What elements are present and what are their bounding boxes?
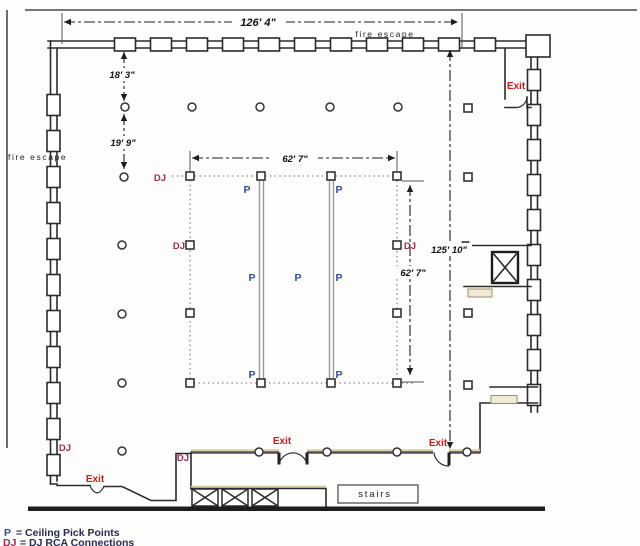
wall-pilaster xyxy=(528,175,541,196)
wall-pilaster xyxy=(47,383,60,404)
pick-point-label: P xyxy=(248,369,255,381)
wall-pilaster xyxy=(47,131,60,152)
wall-pilaster xyxy=(403,38,424,51)
wall-pilaster xyxy=(528,315,541,336)
column-square xyxy=(393,309,401,317)
south-walls xyxy=(28,450,545,511)
bottom-wall xyxy=(28,507,545,512)
wall-pilaster xyxy=(47,455,60,476)
dim-label-rig-width: 62' 7" xyxy=(282,154,308,165)
column-square xyxy=(464,309,472,317)
exit-label-center: Exit xyxy=(273,436,292,447)
ledge xyxy=(468,289,492,297)
column-square xyxy=(393,379,401,387)
column-circle xyxy=(255,448,263,456)
column-square xyxy=(186,241,194,249)
column-square xyxy=(393,172,401,180)
wall-pilaster xyxy=(259,38,280,51)
double-door-swing xyxy=(279,453,307,464)
column-square xyxy=(186,379,194,387)
exit-label-right: Exit xyxy=(429,438,448,449)
column-circle xyxy=(118,447,126,455)
wall-pilaster xyxy=(295,38,316,51)
fire-escape-label-top: fire escape xyxy=(355,29,414,39)
wall-pilaster xyxy=(528,70,541,91)
pick-point-label: P xyxy=(335,369,342,381)
scan-frame xyxy=(7,10,637,448)
wall-pilaster xyxy=(528,350,541,371)
column-circle xyxy=(323,448,331,456)
pick-point-label: P xyxy=(335,272,342,284)
wall-pilaster xyxy=(47,419,60,440)
column-square xyxy=(257,172,265,180)
dj-label: DJ xyxy=(173,241,185,252)
wall-pilaster xyxy=(47,95,60,116)
stairs-label: stairs xyxy=(358,489,392,500)
column-square xyxy=(257,379,265,387)
wall-pilaster xyxy=(528,140,541,161)
wall-pilaster xyxy=(47,275,60,296)
column-square xyxy=(186,309,194,317)
wall-pilaster xyxy=(528,280,541,301)
wall-pilaster xyxy=(47,239,60,260)
floor-plan: 126' 4" 18' 3" 19' 9" 62' 7" 62' 7" 125'… xyxy=(0,0,640,546)
column-circle xyxy=(118,310,126,318)
wall-pilaster xyxy=(47,311,60,332)
wall-pilaster xyxy=(475,38,496,51)
wall-pilaster xyxy=(151,38,172,51)
dim-label-top-width: 126' 4" xyxy=(240,17,276,29)
wall-pilaster xyxy=(47,167,60,188)
column-circle xyxy=(326,103,334,111)
dj-label: DJ xyxy=(177,453,189,464)
column-circle xyxy=(120,173,128,181)
legend-dj-symbol: DJ xyxy=(3,537,17,546)
pick-point-label: P xyxy=(294,272,301,284)
floor-plan-svg: 126' 4" 18' 3" 19' 9" 62' 7" 62' 7" 125'… xyxy=(0,0,640,546)
exterior-walls xyxy=(47,35,550,484)
wall-pilaster xyxy=(528,210,541,231)
column-square xyxy=(186,172,194,180)
wall-pilaster xyxy=(439,38,460,51)
pick-point-label: P xyxy=(335,184,342,196)
column-square xyxy=(327,172,335,180)
column-square xyxy=(327,379,335,387)
dj-label: DJ xyxy=(59,443,71,454)
text-layer: 126' 4" 18' 3" 19' 9" 62' 7" 62' 7" 125'… xyxy=(3,17,526,546)
wall-pilaster xyxy=(331,38,352,51)
corner-pilaster xyxy=(526,35,550,57)
dim-label-18-3: 18' 3" xyxy=(109,70,135,81)
door-swing-arc xyxy=(516,97,527,108)
dj-label: DJ xyxy=(154,173,166,184)
dim-label-19-9: 19' 9" xyxy=(110,138,136,149)
column-square xyxy=(464,104,472,112)
column-square xyxy=(393,241,401,249)
column-circle xyxy=(256,103,264,111)
dj-label: DJ xyxy=(404,241,416,252)
dim-label-rig-height: 62' 7" xyxy=(400,268,426,279)
elevator-core xyxy=(463,242,532,297)
wall-pilaster xyxy=(115,38,136,51)
column-circle xyxy=(188,103,196,111)
wall-pilaster xyxy=(47,203,60,224)
column-circle xyxy=(393,448,401,456)
column-square xyxy=(464,173,472,181)
exit-label-left: Exit xyxy=(86,474,105,485)
pick-point-label: P xyxy=(248,272,255,284)
dim-label-hall-depth: 125' 10" xyxy=(431,245,467,256)
door-swing-arc xyxy=(434,453,449,467)
wall-pilaster xyxy=(223,38,244,51)
column-circle xyxy=(118,241,126,249)
column-circle xyxy=(118,379,126,387)
wall-pilaster xyxy=(187,38,208,51)
rig-area xyxy=(172,176,413,383)
exit-label-top-right: Exit xyxy=(507,81,526,92)
door-swing-arc xyxy=(90,486,104,493)
wall-pilaster xyxy=(367,38,388,51)
ledge xyxy=(491,396,517,404)
column-square xyxy=(464,381,472,389)
column-circle xyxy=(463,448,471,456)
column-circle xyxy=(121,103,129,111)
fire-escape-label-left: fire escape xyxy=(8,152,67,162)
column-circle xyxy=(394,103,402,111)
shaft-boxes xyxy=(192,489,278,506)
wall-pilaster xyxy=(47,347,60,368)
pick-point-label: P xyxy=(243,184,250,196)
wall-pilaster xyxy=(528,245,541,266)
legend-dj-text: = DJ RCA Connections xyxy=(20,537,134,546)
